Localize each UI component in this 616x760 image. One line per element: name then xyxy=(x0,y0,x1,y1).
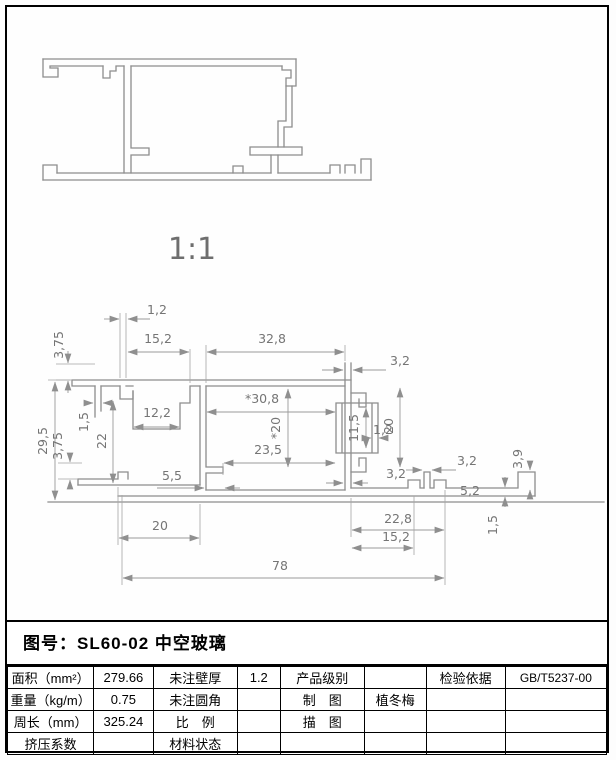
spec-label-drawn-by: 制 图 xyxy=(280,689,364,711)
spec-value-product-grade xyxy=(364,667,426,689)
spec-label-product-grade: 产品级别 xyxy=(280,667,364,689)
dim-label: 1,2 xyxy=(147,302,167,317)
spec-value-scale xyxy=(238,711,281,733)
profile-cross-section-1to1: 1:1 xyxy=(7,7,607,277)
dim-label: 20 xyxy=(152,518,168,533)
dim-label: 15,2 xyxy=(144,331,172,346)
dim-label: 3,75 xyxy=(50,432,65,460)
spec-value-perimeter: 325.24 xyxy=(94,711,153,733)
dim-label: 1,5 xyxy=(76,412,91,432)
spec-value-material-state xyxy=(238,733,281,755)
spec-cell xyxy=(505,711,606,733)
dim-label: 3,2 xyxy=(457,453,477,468)
spec-cell xyxy=(280,733,364,755)
drawing-number-title: 图号：SL60-02 中空玻璃 xyxy=(7,622,607,666)
dimensioned-profile-view: 1,2 3,75 15,2 32,8 3,2 29,5 xyxy=(7,295,607,620)
dim-label: 20 xyxy=(381,418,396,434)
spec-label-traced-by: 描 图 xyxy=(280,711,364,733)
spec-label-weight: 重量（kg/m） xyxy=(8,689,94,711)
spec-value-area: 279.66 xyxy=(94,667,153,689)
dim-label: 5,2 xyxy=(460,483,480,498)
dim-label: 11,5 xyxy=(346,414,361,442)
scanned-drawing-page: 1:1 xyxy=(0,0,616,760)
spec-label-area: 面积（mm²） xyxy=(8,667,94,689)
spec-value-drawn-by: 植冬梅 xyxy=(364,689,426,711)
title-block: 图号：SL60-02 中空玻璃 面积（mm²） 279.66 未注壁厚 1.2 … xyxy=(5,620,609,753)
spec-cell xyxy=(364,733,426,755)
spec-label-material-state: 材料状态 xyxy=(153,733,237,755)
spec-value-wall-thickness: 1.2 xyxy=(238,667,281,689)
dim-label: 29,5 xyxy=(35,427,50,455)
dim-label: 3,75 xyxy=(51,331,66,359)
dim-label: 3,9 xyxy=(510,449,525,469)
table-row: 挤压系数 材料状态 xyxy=(8,733,607,755)
spec-label-scale: 比 例 xyxy=(153,711,237,733)
dim-label: 23,5 xyxy=(254,442,282,457)
spec-cell xyxy=(426,733,505,755)
spec-cell xyxy=(426,711,505,733)
dim-label: 15,2 xyxy=(382,529,410,544)
spec-value-weight: 0.75 xyxy=(94,689,153,711)
spec-label-perimeter: 周长（mm） xyxy=(8,711,94,733)
spec-value-inspection-basis: GB/T5237-00 xyxy=(505,667,606,689)
spec-table: 面积（mm²） 279.66 未注壁厚 1.2 产品级别 检验依据 GB/T52… xyxy=(7,666,607,755)
dim-label: 3,2 xyxy=(390,353,410,368)
table-row: 重量（kg/m） 0.75 未注圆角 制 图 植冬梅 xyxy=(8,689,607,711)
spec-label-extrusion-coeff: 挤压系数 xyxy=(8,733,94,755)
dim-label: *20 xyxy=(268,417,283,439)
table-row: 面积（mm²） 279.66 未注壁厚 1.2 产品级别 检验依据 GB/T52… xyxy=(8,667,607,689)
scale-label: 1:1 xyxy=(168,232,216,267)
spec-cell xyxy=(426,689,505,711)
spec-label-wall-thickness: 未注壁厚 xyxy=(153,667,237,689)
dim-label: 78 xyxy=(272,558,288,573)
dim-label: 3,2 xyxy=(386,466,406,481)
dim-label: 22,8 xyxy=(384,511,412,526)
spec-value-fillet xyxy=(238,689,281,711)
spec-cell xyxy=(505,733,606,755)
table-row: 周长（mm） 325.24 比 例 描 图 xyxy=(8,711,607,733)
dim-label: *30,8 xyxy=(245,391,279,406)
dim-label: 5,5 xyxy=(162,468,182,483)
spec-value-traced-by xyxy=(364,711,426,733)
drawing-area: 1:1 xyxy=(7,7,607,620)
spec-cell xyxy=(505,689,606,711)
spec-label-fillet: 未注圆角 xyxy=(153,689,237,711)
dim-label: 1,5 xyxy=(485,515,500,535)
dim-label: 32,8 xyxy=(258,331,286,346)
spec-label-inspection-basis: 检验依据 xyxy=(426,667,505,689)
spec-value-extrusion-coeff xyxy=(94,733,153,755)
dim-label: 12,2 xyxy=(143,405,171,420)
dim-label: 22 xyxy=(94,433,109,449)
